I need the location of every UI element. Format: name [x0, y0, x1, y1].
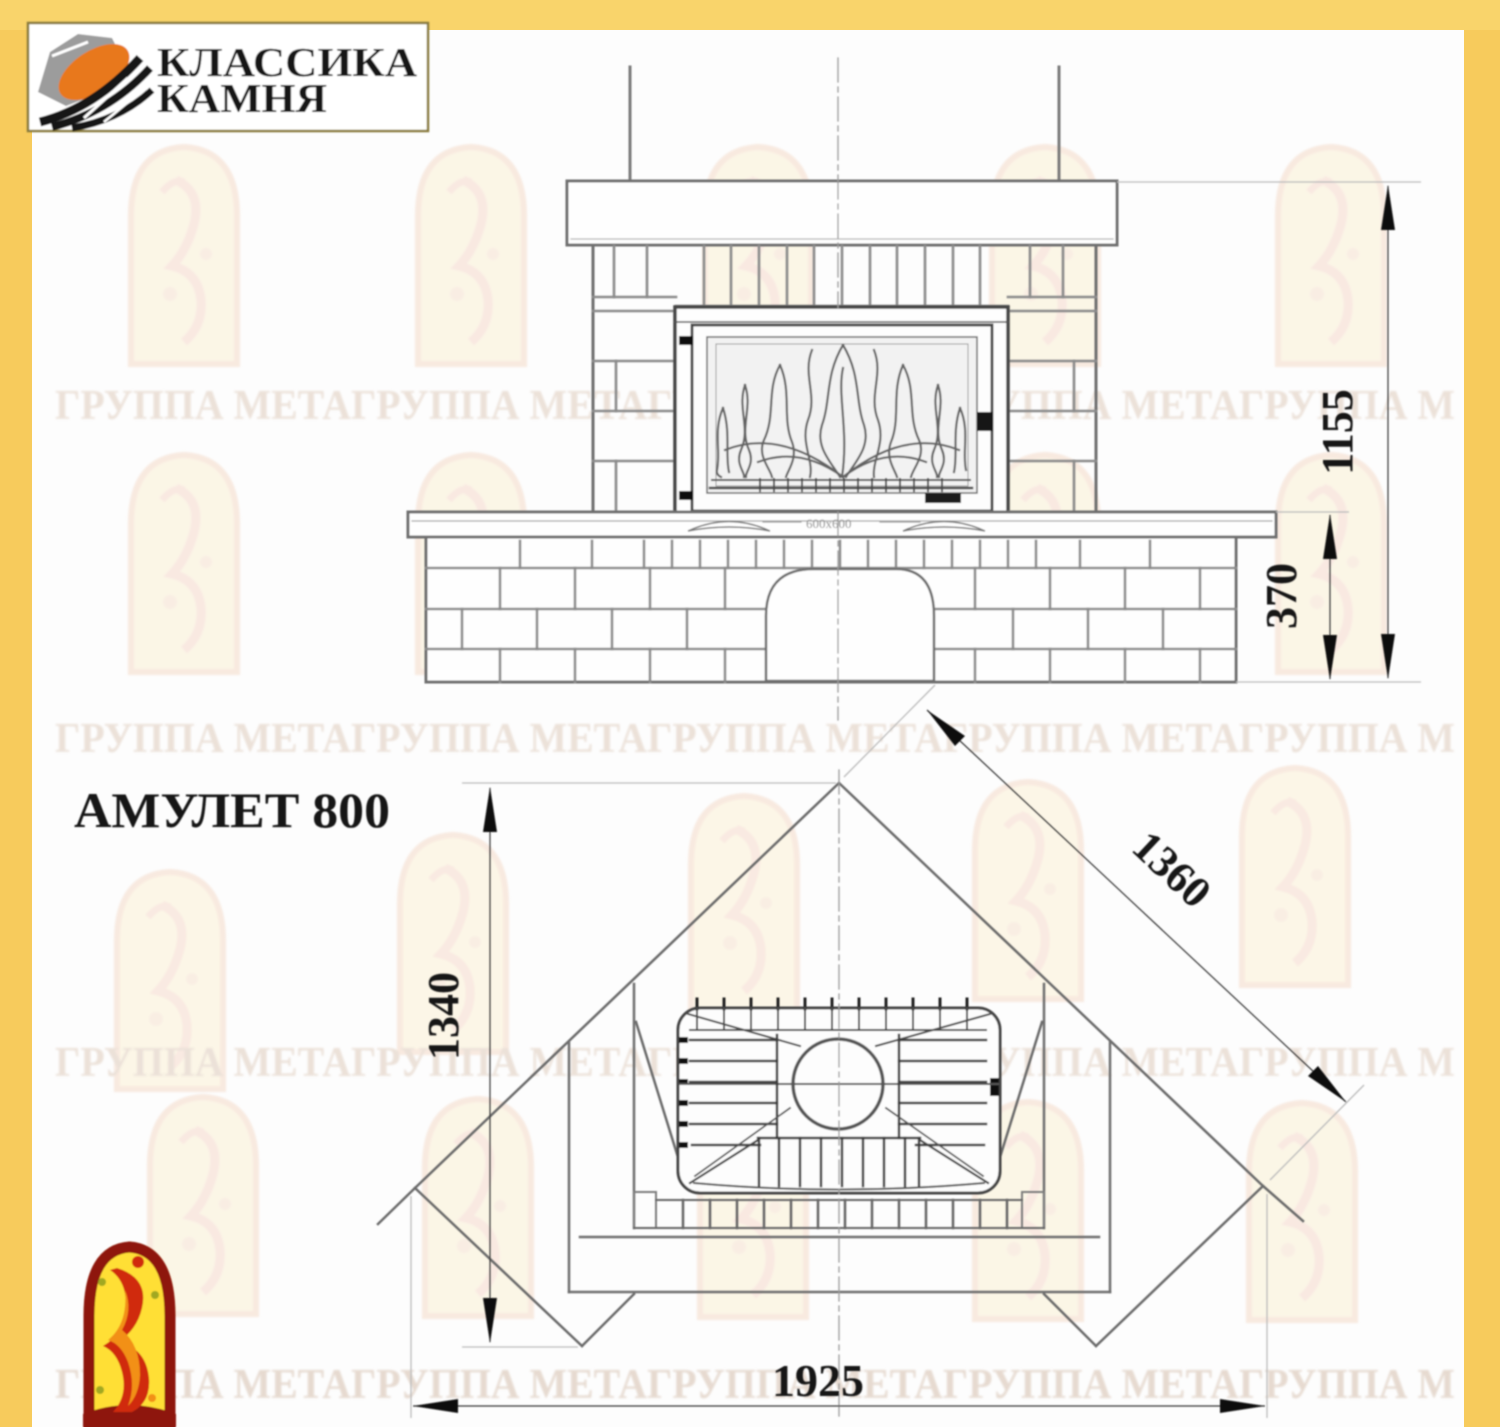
svg-text:1925: 1925: [772, 1355, 864, 1406]
svg-text:ГРУППА МЕТАГРУППА МЕТАГРУППА М: ГРУППА МЕТАГРУППА МЕТАГРУППА МЕТАГРУППА …: [55, 716, 1455, 762]
svg-text:КАМНЯ: КАМНЯ: [157, 75, 327, 121]
svg-text:1340: 1340: [419, 972, 468, 1060]
svg-text:1155: 1155: [1313, 389, 1362, 475]
svg-text:АМУЛЕТ 800: АМУЛЕТ 800: [74, 782, 390, 838]
svg-text:600x600: 600x600: [806, 516, 852, 531]
svg-text:ГРУППА МЕТАГРУППА МЕТАГРУППА М: ГРУППА МЕТАГРУППА МЕТАГРУППА МЕТАГРУППА …: [55, 1362, 1455, 1408]
svg-text:370: 370: [1257, 563, 1306, 629]
